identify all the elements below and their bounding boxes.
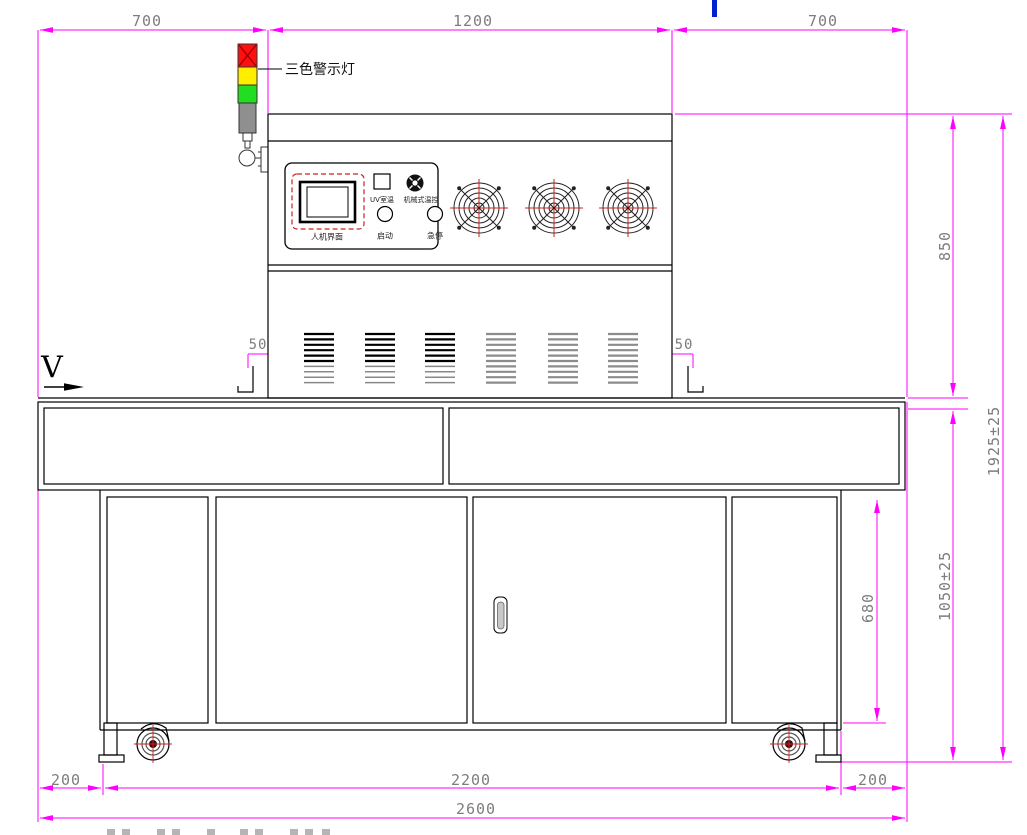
cabinet-door — [216, 497, 467, 723]
cabinet-door — [473, 497, 726, 723]
dim-flange-left: 50 — [249, 337, 268, 353]
blue-mark — [712, 0, 717, 17]
vent-slat-group — [365, 334, 395, 383]
dim-flange-right: 50 — [675, 337, 694, 353]
dim-top-left: 700 — [132, 12, 162, 30]
vent-slat-group — [608, 334, 638, 383]
vent-slat-group — [425, 334, 455, 383]
dim-right-lower: 1050±25 — [936, 551, 954, 621]
vent-slat-group — [486, 334, 516, 383]
drawing-linework — [0, 0, 1027, 835]
view-marker: V — [41, 351, 63, 386]
start-button-icon — [378, 207, 393, 222]
left-bracket — [238, 366, 253, 392]
door-handle-icon — [494, 597, 507, 633]
fan-grille-icon — [525, 179, 583, 237]
mount-ball — [239, 150, 255, 166]
control-panel — [285, 163, 443, 249]
start-button-label: 启动 — [377, 231, 393, 242]
hmi-label: 人机界面 — [311, 232, 343, 243]
dim-bottom-total: 2600 — [456, 800, 496, 818]
dim-bottom-right: 200 — [858, 771, 888, 789]
dimension-lines — [38, 30, 1012, 822]
dim-top-right: 700 — [808, 12, 838, 30]
vent-slat-group — [548, 334, 578, 383]
dim-bottom-left: 200 — [51, 771, 81, 789]
thermostat-label: 机械式温控 — [404, 195, 439, 205]
dim-bottom-center: 2200 — [451, 771, 491, 789]
uv-window-label: UV室温 — [370, 195, 394, 205]
feet-and-casters — [99, 723, 841, 763]
vent-slats — [304, 334, 638, 383]
vent-slat-group — [304, 334, 334, 383]
uv-window — [374, 174, 390, 189]
conveyor-left-panel — [44, 408, 443, 484]
mount-bracket — [261, 147, 268, 172]
warning-yellow-segment — [238, 67, 257, 85]
fan-grille-icon — [599, 179, 657, 237]
conveyor-table — [38, 398, 905, 490]
technical-drawing-canvas: 700 1200 700 850 1925±25 1050±25 680 50 … — [0, 0, 1027, 835]
warning-light-label: 三色警示灯 — [285, 59, 355, 79]
cabinet-door — [107, 497, 208, 723]
fan-grilles — [450, 179, 657, 237]
dim-door-height: 680 — [859, 593, 877, 623]
dim-right-upper: 850 — [936, 231, 954, 261]
conveyor-right-panel — [449, 408, 899, 484]
cabinet-door — [732, 497, 837, 723]
support-brackets — [238, 366, 703, 392]
hmi-screen — [307, 187, 348, 217]
tricolor-warning-light — [238, 44, 282, 172]
estop-button-icon — [428, 207, 443, 222]
lower-cabinet — [100, 490, 841, 730]
warning-green-segment — [238, 85, 257, 103]
right-bracket — [688, 366, 703, 392]
dim-right-total: 1925±25 — [985, 406, 1003, 476]
fan-grille-icon — [450, 179, 508, 237]
dim-top-center: 1200 — [453, 12, 493, 30]
leveling-foot-icon — [99, 723, 124, 762]
thermostat-knob-icon — [407, 175, 424, 192]
warning-pole — [239, 103, 256, 133]
leveling-foot-icon — [816, 723, 841, 762]
estop-button-label: 急停 — [427, 231, 443, 242]
